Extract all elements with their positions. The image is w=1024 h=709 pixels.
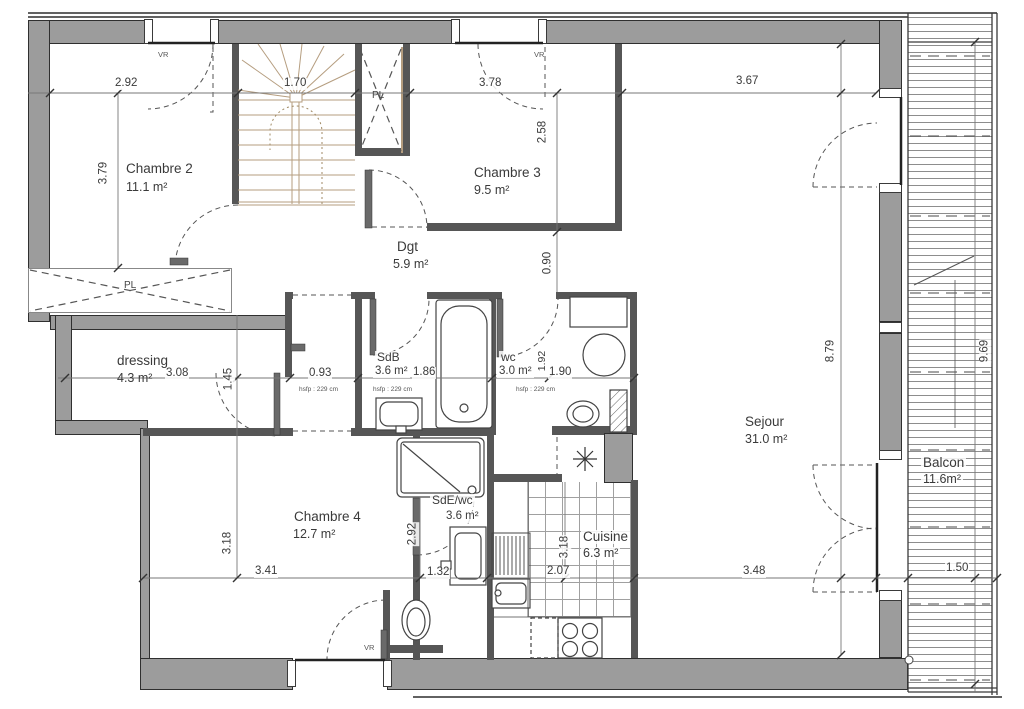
note-ceiling-hall: hsfp : 229 cm <box>299 387 338 394</box>
note-vr-top-mid: VR <box>534 51 544 59</box>
room-area-balcon: 11.6m² <box>921 473 963 486</box>
dim-dressing-width: 3.08 <box>165 368 189 380</box>
dim-sejour-width-top: 3.67 <box>735 76 759 88</box>
wc-duct <box>610 390 627 432</box>
room-label-balcon: Balcon <box>921 456 966 470</box>
dim-sejour-width: 3.48 <box>742 566 766 578</box>
balcony-diagonal <box>914 256 974 285</box>
room-area-sdb: 3.6 m² <box>373 366 410 378</box>
room-label-sdb: SdB <box>375 351 402 363</box>
room-area-chambre4: 12.7 m² <box>293 528 335 541</box>
room-area-dgt: 5.9 m² <box>393 258 428 271</box>
dim-stairs-width: 1.70 <box>283 78 307 90</box>
door-arc-sejour-upper <box>813 123 877 187</box>
drain-icon <box>905 656 913 664</box>
room-area-cuisine: 6.3 m² <box>581 547 620 560</box>
room-area-chambre3: 9.5 m² <box>474 184 509 197</box>
note-vr-bottom: VR <box>364 644 374 652</box>
room-label-chambre4: Chambre 4 <box>294 510 361 524</box>
dim-chambre4-width: 3.41 <box>254 566 278 578</box>
wc-washbasin <box>583 334 625 376</box>
dishwasher <box>531 618 558 658</box>
door-arc-chambre3 <box>369 170 427 228</box>
dim-wc-height: 1.92 <box>537 350 548 372</box>
dim-sdb-width: 1.86 <box>412 367 436 379</box>
dim-sde-height: 2.92 <box>407 522 419 546</box>
room-label-chambre3: Chambre 3 <box>474 166 541 180</box>
door-arc-sejour-french-2 <box>813 528 877 592</box>
dim-hall-width: 0.93 <box>308 368 332 380</box>
note-ceiling-sdb: hsfp : 229 cm <box>373 387 412 394</box>
dim-sde-width: 1.32 <box>426 567 450 579</box>
dim-dgt-height: 0.90 <box>542 251 554 275</box>
note-ceiling-wc: hsfp : 229 cm <box>516 387 555 394</box>
dim-balcon-height: 9.69 <box>979 339 991 363</box>
wc-cupboard <box>570 297 627 327</box>
room-label-wc: wc <box>499 351 518 363</box>
door-arc-wc <box>500 299 558 357</box>
room-area-dressing: 4.3 m² <box>117 372 152 385</box>
note-vr-top-left: VR <box>158 51 168 59</box>
dim-cuisine-width: 2.07 <box>546 566 570 578</box>
dim-dressing-height: 1.45 <box>223 367 235 391</box>
dim-sejour-height: 8.79 <box>825 339 837 363</box>
room-area-sejour: 31.0 m² <box>745 433 787 446</box>
room-area-sde: 3.6 m² <box>444 511 481 523</box>
dim-chambre2-height: 3.79 <box>98 161 110 185</box>
light-star-icon <box>573 447 597 471</box>
dim-chambre3-width: 3.78 <box>478 78 502 90</box>
door-arc-chambre4-window <box>327 600 386 659</box>
dim-balcon-width: 1.50 <box>945 563 969 575</box>
room-label-sejour: Sejour <box>745 415 784 429</box>
room-label-chambre2: Chambre 2 <box>126 162 193 176</box>
room-label-dressing: dressing <box>117 354 168 368</box>
dim-chambre3-height: 2.58 <box>537 120 549 144</box>
dim-chambre4-height: 3.18 <box>222 531 234 555</box>
room-label-cuisine: Cuisine <box>581 530 630 544</box>
door-arc-sejour-french-1 <box>813 465 877 529</box>
stair-walk-line <box>270 106 322 204</box>
dim-cuisine-height: 3.18 <box>559 535 571 559</box>
floor-plan: Chambre 2 11.1 m² Chambre 3 9.5 m² Dgt 5… <box>0 0 1024 709</box>
closet-x-marks <box>30 49 401 311</box>
balcony-joint-lines <box>910 56 990 680</box>
note-pl-wide-closet: PL <box>124 281 136 291</box>
room-label-dgt: Dgt <box>397 240 418 254</box>
room-area-wc: 3.0 m² <box>497 366 534 378</box>
note-pl-tall-closet: PL <box>372 91 384 101</box>
kitchen-appliance-stripes <box>496 536 524 575</box>
dim-chambre2-width: 2.92 <box>114 78 138 90</box>
door-arc-sdb <box>373 299 429 355</box>
staircase <box>238 44 355 205</box>
room-area-chambre2: 11.1 m² <box>126 181 167 194</box>
dim-wc-width: 1.90 <box>548 367 572 379</box>
room-label-sde: SdE/wc <box>430 494 475 506</box>
